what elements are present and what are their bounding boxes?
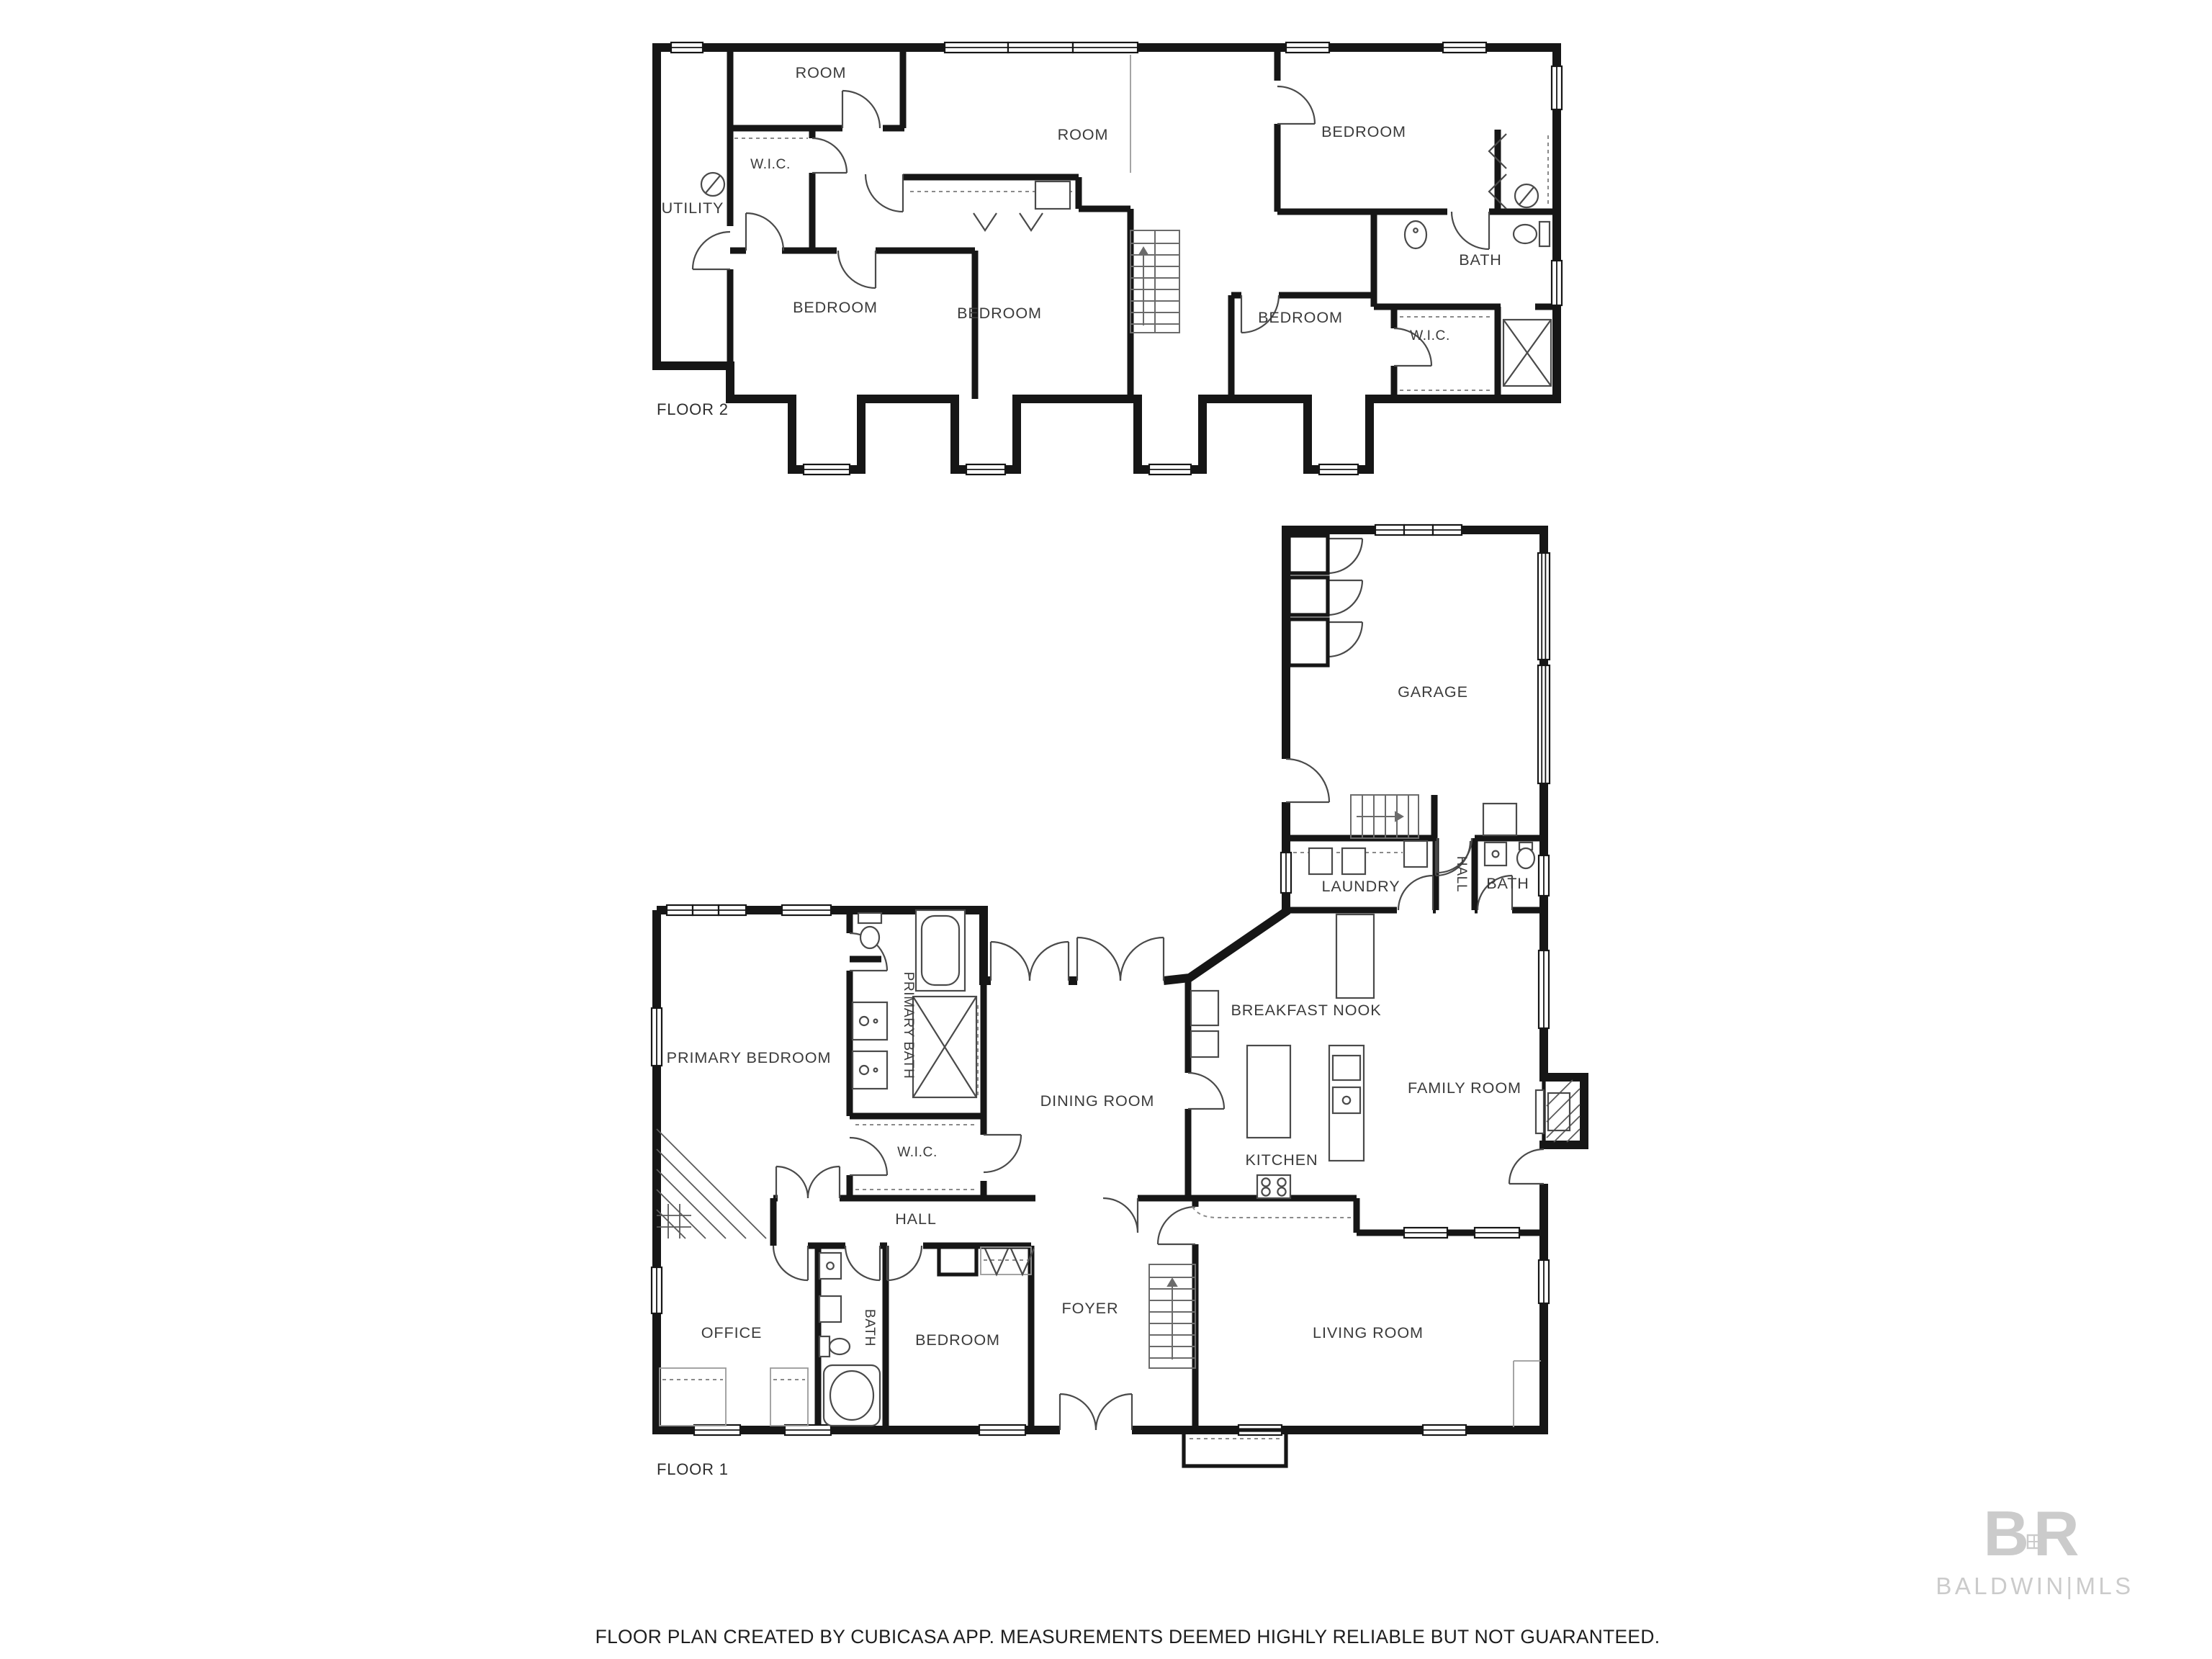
garage-door-panels: [1538, 553, 1550, 783]
label-floor2-bedroom-top: BEDROOM: [1321, 122, 1406, 140]
living-corner-lines: [1514, 1361, 1541, 1427]
watermark-text: BALDWIN|MLS: [1935, 1573, 2134, 1599]
label-primary-bath: PRIMARY BATH: [901, 971, 916, 1079]
label-family-room: FAMILY ROOM: [1408, 1079, 1521, 1097]
label-bedroom-floor1: BEDROOM: [915, 1331, 1000, 1349]
label-floor2-room-small: ROOM: [796, 63, 847, 81]
floor2-electric-icons: [701, 173, 1538, 207]
label-wic-floor1: W.I.C.: [897, 1145, 938, 1160]
label-laundry: LAUNDRY: [1321, 877, 1400, 895]
corner-hatch: [657, 1129, 766, 1238]
label-bath-lower: BATH: [862, 1309, 877, 1346]
laundry-fixtures: [1293, 841, 1427, 874]
label-floor2-bedroom-left: BEDROOM: [793, 298, 878, 316]
label-hall: HALL: [895, 1210, 937, 1228]
label-office: OFFICE: [701, 1323, 763, 1341]
nook-cabinet: [1336, 914, 1374, 998]
label-bath-upper: BATH: [1486, 874, 1529, 892]
foyer-stairs: [1149, 1264, 1195, 1368]
office-desks: [660, 1368, 808, 1426]
floor2-interior-walls: [730, 48, 1557, 399]
label-floor2-wic-right: W.I.C.: [1410, 328, 1450, 343]
label-floor2-room-center: ROOM: [1058, 125, 1109, 143]
label-dining-room: DINING ROOM: [1040, 1092, 1155, 1110]
baldwin-mls-watermark: BR BALDWIN|MLS: [1935, 1498, 2134, 1599]
label-kitchen: KITCHEN: [1245, 1151, 1318, 1169]
label-hall-upper: HALL: [1454, 856, 1469, 892]
label-floor2-wic-left: W.I.C.: [750, 157, 791, 172]
floor2-plan: UTILITY W.I.C. ROOM ROOM BEDROOM BATH W.…: [657, 42, 1562, 475]
floor2-closets: [734, 134, 1548, 390]
floor2-stairs: [1130, 230, 1179, 333]
floor2-outer-walls: [657, 48, 1557, 469]
garage-stairs: [1351, 795, 1419, 838]
garage-utility-box: [1483, 804, 1516, 835]
floor1-plan: GARAGE LAUNDRY HALL BATH BREAKFAST NOOK …: [652, 525, 1584, 1478]
label-foyer: FOYER: [1062, 1299, 1119, 1317]
label-breakfast-nook: BREAKFAST NOOK: [1231, 1001, 1382, 1019]
label-floor2-bath: BATH: [1459, 251, 1502, 269]
footer-disclaimer: FLOOR PLAN CREATED BY CUBICASA APP. MEAS…: [595, 1626, 1660, 1647]
bedroom-closet: [939, 1246, 1034, 1274]
label-primary-bedroom: PRIMARY BEDROOM: [667, 1048, 832, 1066]
floor2-windows: [671, 42, 1562, 475]
fireplace: [1536, 1077, 1584, 1145]
floor-plan-page: { "document": { "type": "floor-plan", "c…: [0, 0, 2212, 1659]
label-floor2-bedroom-right: BEDROOM: [1258, 308, 1343, 326]
label-floor2: FLOOR 2: [657, 400, 729, 418]
label-living-room: LIVING ROOM: [1313, 1323, 1424, 1341]
label-floor1: FLOOR 1: [657, 1460, 729, 1478]
garage-closets: [1289, 536, 1328, 665]
label-floor2-utility: UTILITY: [662, 199, 724, 217]
upper-bath-fixtures: [1485, 842, 1534, 868]
watermark-monogram: BR: [1983, 1498, 2083, 1569]
label-garage: GARAGE: [1398, 683, 1468, 701]
kitchen-fixtures: [1191, 991, 1364, 1218]
floor-plan-canvas: UTILITY W.I.C. ROOM ROOM BEDROOM BATH W.…: [0, 0, 2212, 1659]
label-floor2-bedroom-middle: BEDROOM: [957, 304, 1042, 322]
